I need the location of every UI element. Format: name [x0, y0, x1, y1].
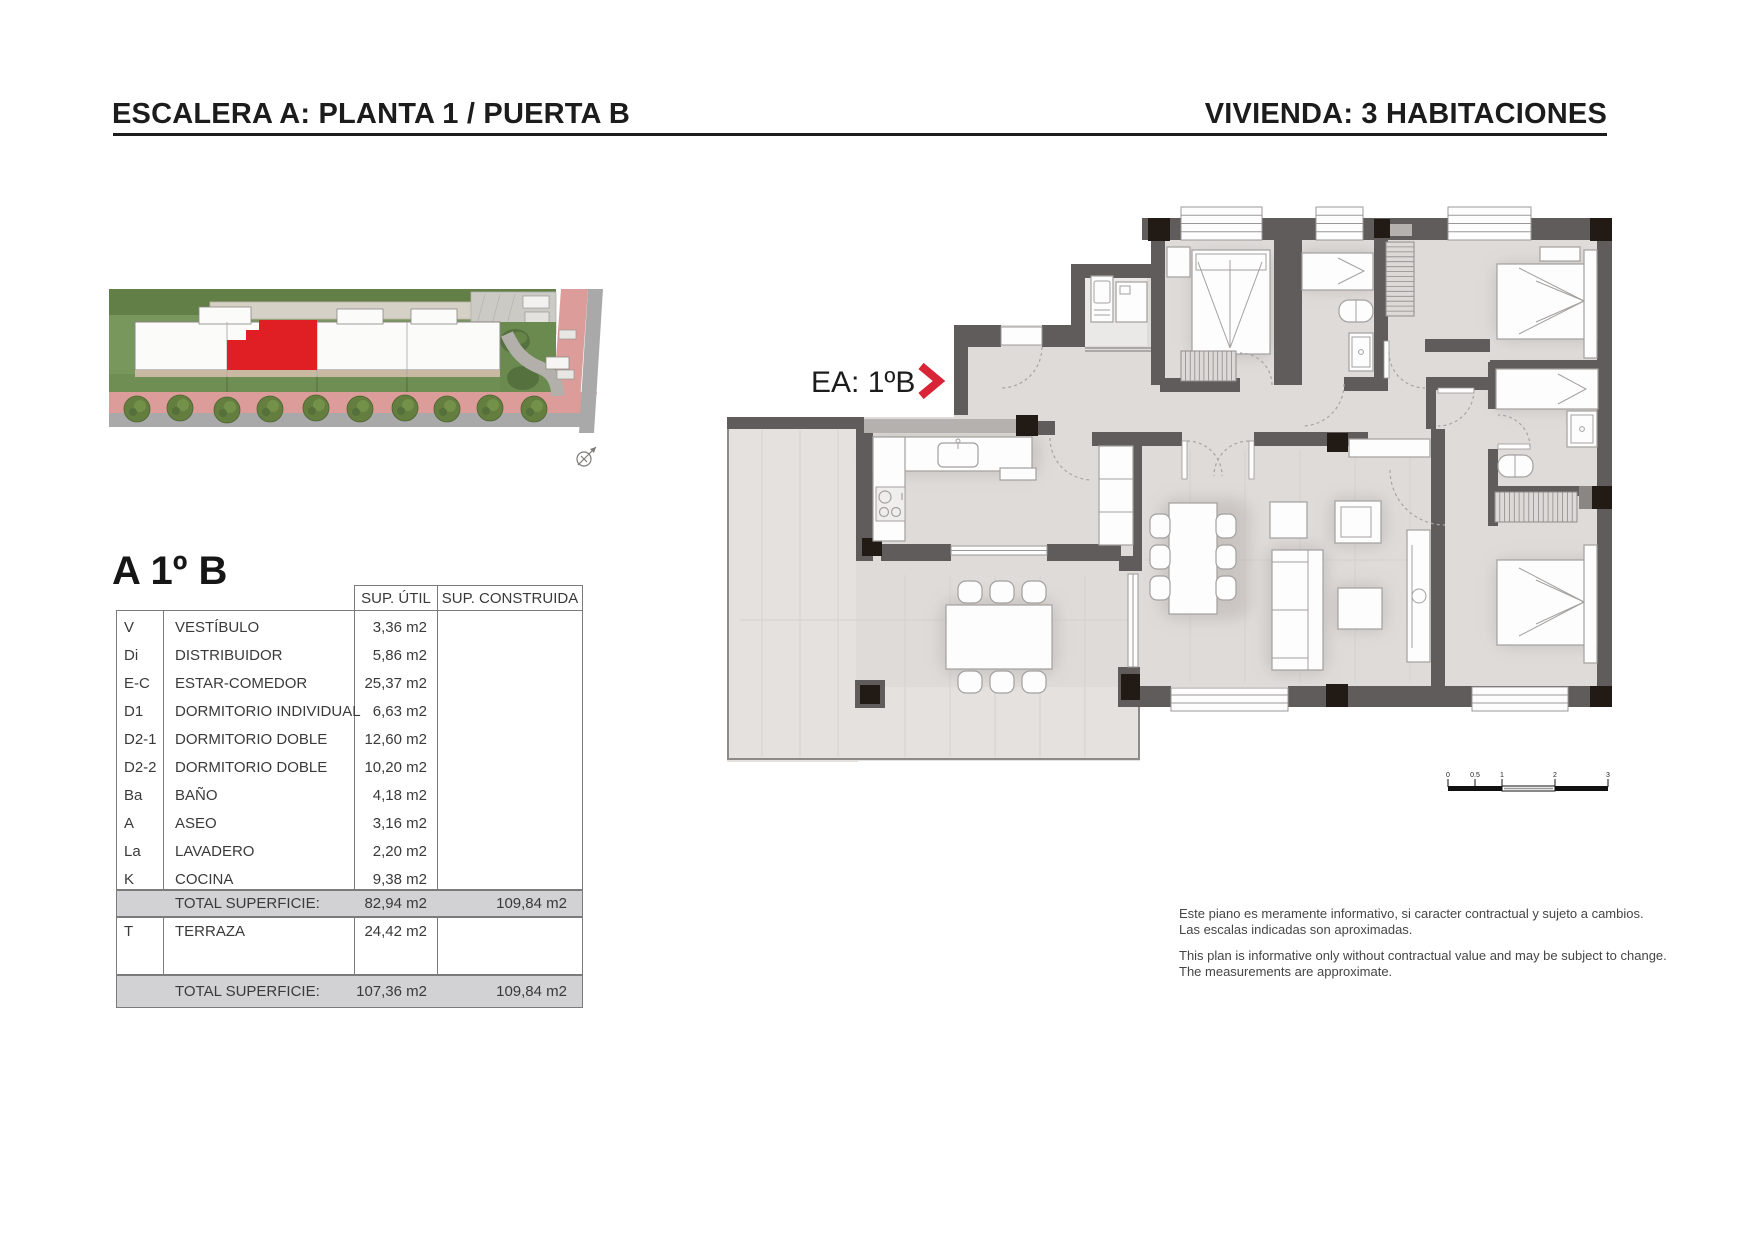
- svg-text:3: 3: [1606, 772, 1610, 779]
- svg-text:0.5: 0.5: [1470, 772, 1480, 779]
- svg-text:0: 0: [1446, 772, 1450, 779]
- svg-text:EA: 1ºB: EA: 1ºB: [811, 366, 915, 399]
- svg-text:2: 2: [1553, 772, 1557, 779]
- svg-text:1: 1: [1500, 772, 1504, 779]
